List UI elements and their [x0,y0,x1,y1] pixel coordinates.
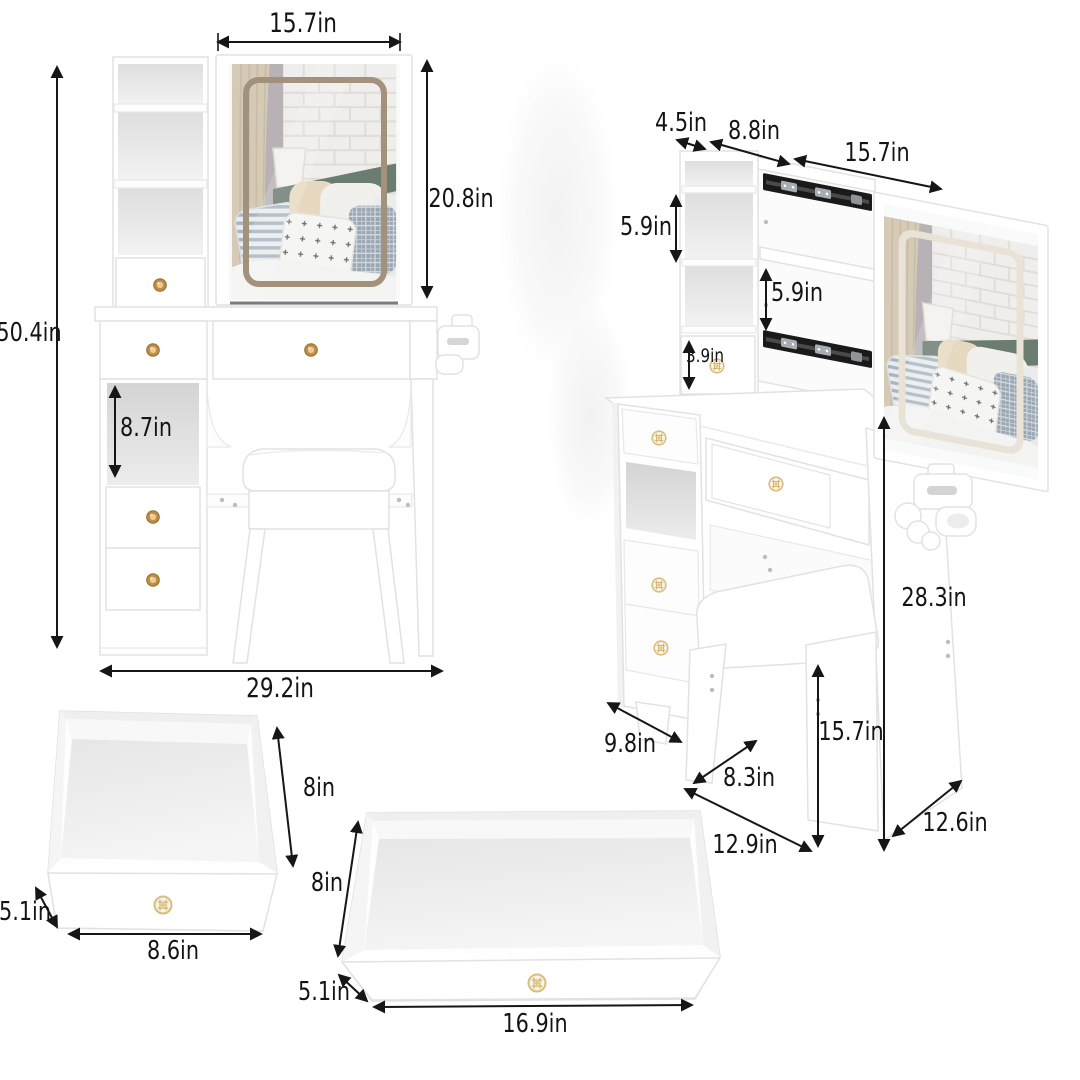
drawer-knob [769,477,783,491]
dim-side-hutch-drawer: 3.9in [686,345,724,367]
drawer-knob [305,344,317,356]
side-view: 4.5in 8.8in 15.7in 5.9in 5.9in 3.9in 28.… [604,107,1048,860]
stool-cushion [243,449,395,491]
drawer-knob [654,641,668,655]
diagram-svg: 15.7in 20.8in 50.4in 8.7in 29.2in [0,0,1080,1080]
front-cubby-2 [118,112,203,180]
drawer-knob [147,574,159,586]
dim-side-cabinet-depth: 9.8in [604,728,656,759]
drawer-knob [147,511,159,523]
stool-leg [233,529,265,663]
dim-front-total-width: 29.2in [246,672,314,704]
dim-side-table-height: 28.3in [901,582,966,613]
front-cubby-1 [118,64,203,104]
dim-wide-drawer-depth: 8in [311,867,343,898]
product-dimension-diagram: 15.7in 20.8in 50.4in 8.7in 29.2in [0,0,1080,1080]
desk-top [95,307,437,321]
dim-small-drawer-height: 5.1in [0,896,51,927]
dim-side-tabletop-depth: 12.6in [922,807,987,838]
side-open-shelf [626,462,696,540]
dim-small-drawer-depth: 8in [303,772,335,803]
front-mirror [216,55,412,305]
dim-front-mirror-width: 15.7in [269,7,337,39]
front-hutch-shelf [113,57,208,313]
front-view: 15.7in 20.8in 50.4in 8.7in 29.2in [0,7,494,704]
dim-side-top-depth: 4.5in [655,107,707,138]
dim-wide-drawer-height: 5.1in [298,976,350,1007]
drawer-knob [652,431,666,445]
small-drawer-view: 8in 5.1in 8.6in [0,711,335,966]
dim-front-total-height: 50.4in [0,317,62,348]
drawer-knob [155,897,172,914]
front-cubby-3 [118,188,203,255]
dim-side-base-depth: 12.9in [712,829,777,860]
front-desk-leg [411,379,433,656]
dim-front-shelf-space: 8.7in [120,412,172,443]
dim-side-back-width: 8.8in [728,115,780,146]
side-stool [686,565,878,831]
stool-leg [373,529,404,663]
hair-dryer-holder [436,315,479,374]
front-stool [233,449,404,663]
drawer-interior [364,838,703,950]
dim-side-middle-cubby: 5.9in [771,277,823,308]
background-shading [498,50,632,530]
wide-drawer-view: 8in 5.1in 16.9in [298,811,720,1039]
side-mirror [874,192,1048,492]
drawer-interior [61,739,259,862]
dim-wide-drawer-width: 16.9in [502,1008,567,1039]
drawer-knob [147,344,159,356]
dim-side-stool-height: 15.7in [818,716,883,747]
dim-side-mirror-slide: 15.7in [844,137,909,168]
stool-leg [686,644,726,783]
dim-small-drawer-width: 8.6in [147,935,199,966]
drawer-knob [154,279,166,291]
drawer-knob [529,975,546,992]
dim-front-mirror-height: 20.8in [428,183,493,214]
dim-side-upper-cubby: 5.9in [620,211,672,242]
drawer-knob [652,578,666,592]
dim-side-stool-depth: 8.3in [723,762,775,793]
